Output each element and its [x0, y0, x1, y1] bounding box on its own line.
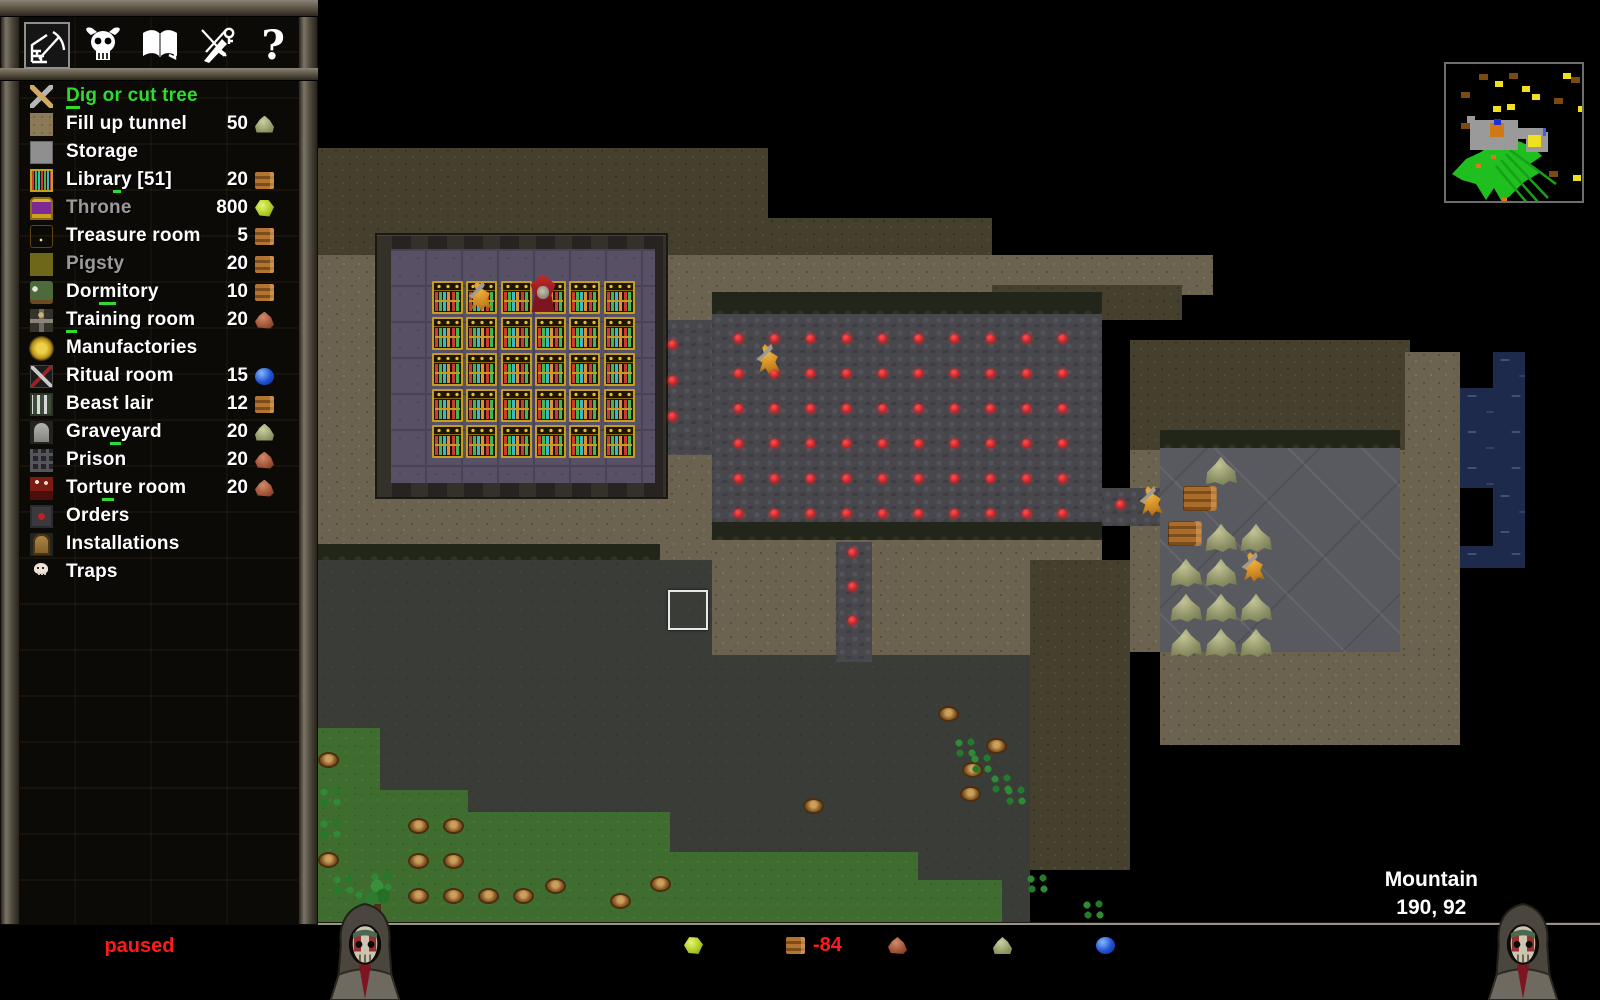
- gem-resource-icon: [684, 937, 703, 954]
- sidebar-item-fill[interactable]: Fill up tunnel50: [24, 110, 296, 138]
- sidebar-item-treasure[interactable]: Treasure room5: [24, 222, 296, 250]
- cost-value: 20: [227, 309, 274, 331]
- tree-stump: [545, 878, 566, 894]
- dig-wall-tool[interactable]: [24, 22, 70, 69]
- torch-dot: [1058, 369, 1067, 378]
- tree-stump: [803, 798, 824, 814]
- torch-dot: [668, 340, 677, 349]
- sidebar-item-label: Library [51]: [66, 169, 172, 191]
- torch-dot: [1058, 404, 1067, 413]
- tree-stump: [960, 786, 981, 802]
- sidebar-item-label: Beast lair: [66, 393, 154, 415]
- sidebar-item-label: Fill up tunnel: [66, 113, 187, 135]
- map-region-water[interactable]: [1493, 352, 1525, 388]
- torch-dot: [878, 404, 887, 413]
- tree-stump: [318, 852, 339, 868]
- sidebar-item-label: Ritual room: [66, 365, 174, 387]
- iron-resource-icon: [888, 937, 907, 954]
- rock-resource-counter: 705: [993, 934, 1053, 957]
- bush-patch: [317, 785, 345, 809]
- bookshelf[interactable]: [466, 389, 497, 422]
- torch-dot: [878, 439, 887, 448]
- bookshelf[interactable]: [501, 281, 532, 314]
- bush-patch: [1080, 898, 1108, 922]
- dig-icon: [30, 85, 53, 108]
- beast-lair-icon: [30, 393, 53, 416]
- torch-dot: [848, 616, 857, 625]
- bookshelf[interactable]: [569, 353, 600, 386]
- cost-value: 12: [227, 393, 274, 415]
- iron-resource-icon: [255, 312, 274, 329]
- day-counter: day [203]: [873, 958, 960, 981]
- tree-stump: [513, 888, 534, 904]
- speed-indicator[interactable]: speed:paused: [40, 935, 175, 958]
- bookshelf[interactable]: [569, 425, 600, 458]
- sidebar-item-beastlair[interactable]: Beast lair12: [24, 390, 296, 418]
- torch-dot: [734, 369, 743, 378]
- sidebar-item-label: Storage: [66, 141, 138, 163]
- dig-wall-icon: [27, 25, 67, 65]
- build-menu: Dig or cut treeFill up tunnel50StorageLi…: [24, 82, 296, 586]
- torch-dot: [986, 334, 995, 343]
- bookshelf[interactable]: [535, 353, 566, 386]
- resource-value: -84: [813, 934, 842, 957]
- torch-dot: [986, 439, 995, 448]
- cost-value: 50: [227, 113, 274, 135]
- bookshelf[interactable]: [604, 389, 635, 422]
- torch-dot: [878, 474, 887, 483]
- torch-dot: [914, 474, 923, 483]
- torch-dot: [914, 369, 923, 378]
- torch-dot: [1058, 439, 1067, 448]
- rock-resource-icon: [993, 937, 1012, 954]
- torch-dot: [842, 334, 851, 343]
- sidebar-item-training[interactable]: Training room20: [24, 306, 296, 334]
- sidebar-item-torture[interactable]: Torture room20: [24, 474, 296, 502]
- map-region-dirt-light[interactable]: [1160, 652, 1460, 745]
- sidebar-item-label: Dormitory: [66, 281, 159, 303]
- prison-icon: [30, 449, 53, 472]
- tree-stump: [610, 893, 631, 909]
- location-coords: 190, 92: [1385, 894, 1478, 922]
- torch-dot: [842, 369, 851, 378]
- resource-value: 233: [1123, 934, 1156, 957]
- reaper-portrait-right: [1486, 902, 1560, 1000]
- torch-dot: [950, 474, 959, 483]
- bookshelf[interactable]: [535, 317, 566, 350]
- turn-counter: T: 1297: [740, 958, 807, 981]
- resource-value: 705: [1020, 934, 1053, 957]
- torch-dot: [842, 509, 851, 518]
- tile-cursor: [668, 590, 708, 630]
- bookshelf[interactable]: [501, 317, 532, 350]
- sidebar-item-label: Treasure room: [66, 225, 201, 247]
- torch-dot: [914, 509, 923, 518]
- sidebar-item-storage[interactable]: Storage: [24, 138, 296, 166]
- bookshelf[interactable]: [466, 425, 497, 458]
- manufactories-icon: [30, 337, 53, 360]
- torch-dot: [770, 439, 779, 448]
- sidebar-item-label: Training room: [66, 309, 195, 331]
- wood-logs: [1168, 521, 1202, 546]
- sidebar-item-label: Manufactories: [66, 337, 197, 359]
- frame-right: [298, 0, 318, 925]
- torch-dot: [770, 474, 779, 483]
- tree-stump: [443, 818, 464, 834]
- frame-left: [0, 0, 20, 925]
- tree-stump: [318, 752, 339, 768]
- gem-resource-counter: 0: [684, 934, 722, 957]
- sidebar-item-label: Throne: [66, 197, 132, 219]
- traps-icon: [30, 561, 53, 584]
- training-icon: [30, 309, 53, 332]
- sidebar-item-label: Prison: [66, 449, 126, 471]
- cost-value: 20: [227, 477, 274, 499]
- cost-value: 20: [227, 421, 274, 443]
- torch-dot: [842, 404, 851, 413]
- location-info: Mountain 190, 92: [1385, 866, 1478, 922]
- tree-stump: [938, 706, 959, 722]
- sidebar-item-dig[interactable]: Dig or cut tree: [24, 82, 296, 110]
- wood-logs: [1183, 486, 1217, 511]
- iron-resource-icon: [255, 452, 274, 469]
- bookshelf[interactable]: [604, 317, 635, 350]
- torch-dot: [668, 412, 677, 421]
- rock-resource-icon: [255, 424, 274, 441]
- sidebar-item-label: Installations: [66, 533, 179, 555]
- bush-patch: [1002, 784, 1030, 808]
- torch-dot: [1022, 404, 1031, 413]
- sidebar-item-installations[interactable]: Installations: [24, 530, 296, 558]
- tree-stump: [478, 888, 499, 904]
- sidebar-item-throne[interactable]: Throne800: [24, 194, 296, 222]
- throne-icon: [30, 197, 53, 220]
- technology-tool[interactable]: [137, 22, 183, 69]
- fps-counter: FPS 59 / 47: [190, 935, 296, 958]
- sidebar-item-label: Torture room: [66, 477, 186, 499]
- torch-dot: [848, 548, 857, 557]
- storage-icon: [30, 141, 53, 164]
- map-region-dirt-light[interactable]: [1130, 450, 1160, 652]
- torch-dot: [950, 369, 959, 378]
- torch-dot: [734, 334, 743, 343]
- torch-dot: [914, 404, 923, 413]
- speed-label: speed:: [40, 935, 104, 957]
- torch-dot: [950, 509, 959, 518]
- bookshelf[interactable]: [604, 425, 635, 458]
- minions-tool[interactable]: [81, 22, 127, 69]
- dagger-key-icon: [196, 25, 238, 65]
- torch-dot: [806, 509, 815, 518]
- torch-dot: [950, 439, 959, 448]
- cost-value: 15: [227, 365, 274, 387]
- torch-dot: [986, 369, 995, 378]
- library-icon: [30, 169, 53, 192]
- minimap-canvas: [1446, 64, 1582, 201]
- cost-value: 800: [216, 197, 274, 219]
- tree-stump: [443, 853, 464, 869]
- cost-value: 20: [227, 449, 274, 471]
- tree-stump: [408, 888, 429, 904]
- torch-dot: [734, 509, 743, 518]
- torch-dot: [806, 369, 815, 378]
- ritual-icon: [30, 365, 53, 388]
- help-icon: ?: [262, 22, 285, 69]
- sidebar-item-graveyard[interactable]: Graveyard20: [24, 418, 296, 446]
- orb-resource-counter: 233: [1096, 934, 1156, 957]
- cost-value: 5: [237, 225, 274, 247]
- torture-icon: [30, 477, 53, 500]
- graveyard-icon: [30, 421, 53, 444]
- pigsty-icon: [30, 253, 53, 276]
- torch-dot: [1022, 334, 1031, 343]
- cost-value: 20: [227, 253, 274, 275]
- map-region-water[interactable]: [1460, 388, 1525, 488]
- tree-stump: [408, 853, 429, 869]
- bush-patch: [1024, 872, 1052, 896]
- keeper-creature[interactable]: [528, 274, 558, 312]
- sidebar-item-prison[interactable]: Prison20: [24, 446, 296, 474]
- sidebar-item-orders[interactable]: Orders: [24, 502, 296, 530]
- torch-dot: [734, 474, 743, 483]
- sidebar-item-manufactories[interactable]: Manufactories: [24, 334, 296, 362]
- bookshelf[interactable]: [604, 353, 635, 386]
- rock-resource-icon: [255, 116, 274, 133]
- torch-dot: [668, 376, 677, 385]
- iron-resource-counter: 0: [888, 934, 926, 957]
- cost-value: 20: [227, 169, 274, 191]
- wood-resource-icon: [255, 396, 274, 413]
- bookshelf[interactable]: [501, 425, 532, 458]
- wood-resource-icon: [786, 937, 805, 954]
- sidebar-item-dormitory[interactable]: Dormitory10: [24, 278, 296, 306]
- help-tool[interactable]: ?: [250, 22, 296, 69]
- torch-dot: [848, 582, 857, 591]
- bookshelf[interactable]: [569, 281, 600, 314]
- sidebar: ? Dig or cut treeFill up tunnel50Storage…: [0, 0, 318, 925]
- torch-dot: [770, 509, 779, 518]
- map-region-wall-band[interactable]: [318, 544, 660, 560]
- torch-dot: [806, 334, 815, 343]
- main-toolbar: ?: [24, 20, 296, 70]
- bookshelf[interactable]: [432, 317, 463, 350]
- map-region-storage-floor[interactable]: [1160, 448, 1400, 652]
- map-region-cobble[interactable]: [836, 542, 872, 662]
- wood-resource-counter: -84: [786, 934, 842, 957]
- iron-resource-icon: [255, 480, 274, 497]
- speed-value: paused: [104, 935, 174, 957]
- bush-patch: [317, 817, 345, 841]
- map-region-wall-band[interactable]: [1160, 430, 1400, 448]
- torch-dot: [1022, 369, 1031, 378]
- sidebar-item-label: Graveyard: [66, 421, 162, 443]
- torch-dot: [842, 439, 851, 448]
- orb-resource-icon: [1096, 937, 1115, 954]
- orders-icon: [30, 505, 53, 528]
- sidebar-item-pigsty[interactable]: Pigsty20: [24, 250, 296, 278]
- torch-dot: [986, 474, 995, 483]
- torch-dot: [914, 439, 923, 448]
- sidebar-item-label: Traps: [66, 561, 118, 583]
- treasure-icon: [30, 225, 53, 248]
- sidebar-item-library[interactable]: Library [51]20: [24, 166, 296, 194]
- resource-value: 0: [711, 934, 722, 957]
- keeper-tool[interactable]: [194, 22, 240, 69]
- torch-dot: [734, 439, 743, 448]
- torch-dot: [806, 404, 815, 413]
- cost-value: 10: [227, 281, 274, 303]
- torch-dot: [1022, 509, 1031, 518]
- bookshelf[interactable]: [432, 389, 463, 422]
- sidebar-item-label: Pigsty: [66, 253, 124, 275]
- sidebar-item-label: Dig or cut tree: [66, 85, 198, 107]
- frame-top: [0, 0, 318, 16]
- map-region-dirt-dark[interactable]: [1030, 560, 1130, 870]
- horned-skull-icon: [82, 25, 124, 65]
- orb-resource-icon: [255, 368, 274, 385]
- dormitory-icon: [30, 281, 53, 304]
- torch-dot: [1058, 334, 1067, 343]
- reaper-portrait-left: [328, 902, 402, 1000]
- torch-dot: [806, 439, 815, 448]
- torch-dot: [1022, 439, 1031, 448]
- tree-stump: [408, 818, 429, 834]
- book-icon: [139, 25, 181, 65]
- bookshelf[interactable]: [535, 425, 566, 458]
- torch-dot: [770, 404, 779, 413]
- torch-dot: [806, 474, 815, 483]
- torch-dot: [878, 334, 887, 343]
- bookshelf[interactable]: [432, 353, 463, 386]
- torch-dot: [1116, 500, 1125, 509]
- location-name: Mountain: [1385, 866, 1478, 894]
- sidebar-item-label: Orders: [66, 505, 130, 527]
- bookshelf[interactable]: [535, 389, 566, 422]
- bookshelf[interactable]: [501, 389, 532, 422]
- gem-resource-icon: [255, 200, 274, 217]
- wood-resource-icon: [255, 228, 274, 245]
- population-counter: population: 1 / 10: [1005, 958, 1169, 981]
- torch-dot: [842, 474, 851, 483]
- map-region-dirt-light[interactable]: [1400, 450, 1460, 652]
- torch-dot: [734, 404, 743, 413]
- torch-dot: [986, 509, 995, 518]
- bookshelf[interactable]: [432, 281, 463, 314]
- minimap[interactable]: [1444, 62, 1584, 203]
- bookshelf[interactable]: [432, 425, 463, 458]
- sidebar-item-ritual[interactable]: Ritual room15: [24, 362, 296, 390]
- installations-icon: [30, 533, 53, 556]
- torch-dot: [986, 404, 995, 413]
- torch-dot: [1058, 474, 1067, 483]
- map-region-water[interactable]: [1460, 546, 1525, 568]
- map-region-water[interactable]: [1493, 488, 1525, 546]
- sidebar-item-traps[interactable]: Traps: [24, 558, 296, 586]
- torch-dot: [1058, 509, 1067, 518]
- torch-dot: [878, 509, 887, 518]
- wood-resource-icon: [255, 256, 274, 273]
- map-region-wall-band[interactable]: [712, 292, 1102, 314]
- bookshelf[interactable]: [501, 353, 532, 386]
- torch-dot: [1022, 474, 1031, 483]
- wood-resource-icon: [255, 284, 274, 301]
- torch-dot: [914, 334, 923, 343]
- torch-dot: [770, 334, 779, 343]
- map-region-wall-band[interactable]: [712, 522, 1102, 540]
- fill-tunnel-icon: [30, 113, 53, 136]
- torch-dot: [950, 404, 959, 413]
- resource-value: 0: [915, 934, 926, 957]
- bookshelf[interactable]: [569, 389, 600, 422]
- bookshelf[interactable]: [604, 281, 635, 314]
- wood-resource-icon: [255, 172, 274, 189]
- bookshelf[interactable]: [569, 317, 600, 350]
- bookshelf[interactable]: [466, 353, 497, 386]
- tree-stump: [650, 876, 671, 892]
- torch-dot: [878, 369, 887, 378]
- tree-stump: [443, 888, 464, 904]
- torch-dot: [950, 334, 959, 343]
- bookshelf[interactable]: [466, 317, 497, 350]
